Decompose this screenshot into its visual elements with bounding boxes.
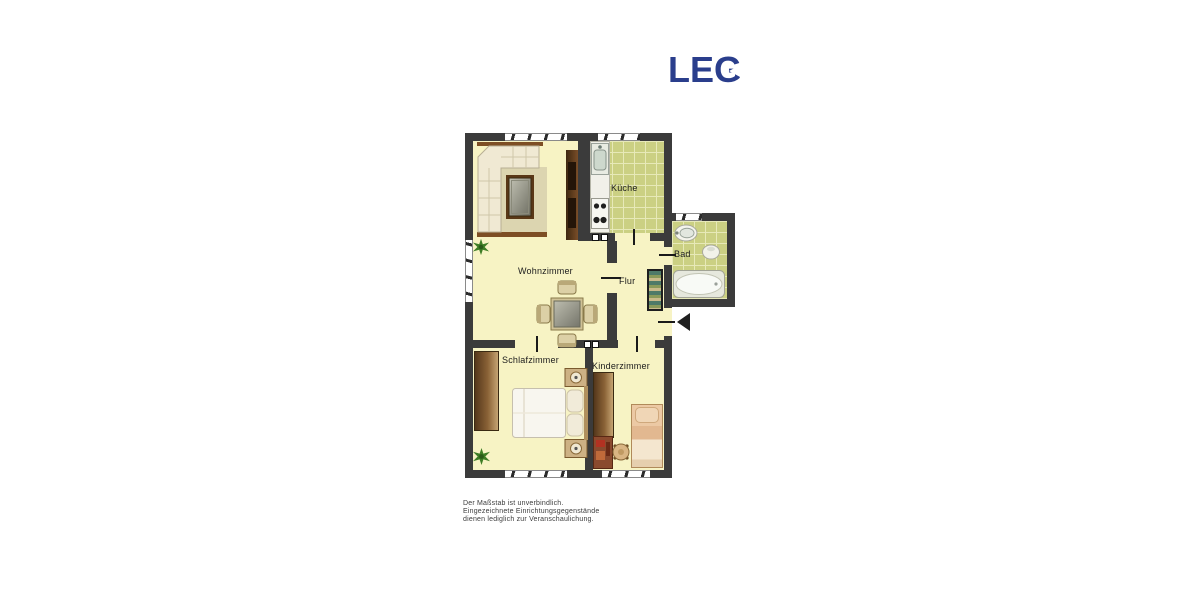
single-bed <box>631 404 663 468</box>
bath-fixtures <box>672 221 727 299</box>
room-label-bad: Bad <box>674 249 691 259</box>
window-kitchen-top <box>598 133 640 141</box>
plant-icon <box>472 238 490 256</box>
room-label-wohnzimmer: Wohnzimmer <box>518 266 573 276</box>
wall-outer-left <box>465 133 473 478</box>
kitchen-counter <box>590 141 610 233</box>
childroom-wardrobe <box>593 372 614 438</box>
disclaimer-line-3: dienen lediglich zur Veranschaulichung. <box>463 516 599 524</box>
door-tick-livingroom <box>601 277 621 279</box>
wall-outer-right <box>664 133 672 478</box>
window-childroom-bottom <box>602 470 650 478</box>
floor-plan-page: LEG <box>0 0 1200 600</box>
bed-pillow <box>635 407 659 423</box>
plant-icon <box>472 447 491 466</box>
desk-with-chair <box>593 434 633 470</box>
disclaimer-text: Der Maßstab ist unverbindlich. Eingezeic… <box>463 500 599 524</box>
chimney-block <box>601 234 608 241</box>
room-label-kinderzimmer: Kinderzimmer <box>592 361 650 371</box>
door-opening-bath <box>664 247 672 265</box>
hall-shelf <box>647 269 663 311</box>
wall-livingroom-kitchen <box>578 133 590 233</box>
entrance-arrow-icon <box>677 313 690 331</box>
room-label-schlafzimmer: Schlafzimmer <box>502 355 559 365</box>
disclaimer-line-2: Eingezeichnete Einrichtungsgegenstände <box>463 508 599 516</box>
door-tick-entrance <box>658 321 675 323</box>
wall-bath-bottom <box>672 299 735 307</box>
door-tick-kitchen <box>633 229 635 245</box>
room-label-flur: Flur <box>619 276 635 286</box>
wall-bath-right <box>727 213 735 307</box>
leg-logo-arrow-notch <box>729 64 742 78</box>
sofa-rug-coffee-table <box>475 141 550 241</box>
wall-outer-top <box>465 133 672 141</box>
door-tick-childroom <box>636 336 638 352</box>
leg-logo: LEG <box>668 50 744 90</box>
double-bed-with-nightstands <box>510 368 590 458</box>
window-bedroom-bottom <box>505 470 567 478</box>
window-livingroom-top <box>505 133 567 141</box>
living-shelf-unit <box>566 150 578 240</box>
chimney-block <box>592 234 599 241</box>
room-label-kueche: Küche <box>611 183 638 193</box>
window-bath-top <box>676 213 702 221</box>
disclaimer-line-1: Der Maßstab ist unverbindlich. <box>463 500 599 508</box>
bedroom-wardrobe <box>474 351 499 431</box>
dining-table-with-chairs <box>534 279 600 349</box>
